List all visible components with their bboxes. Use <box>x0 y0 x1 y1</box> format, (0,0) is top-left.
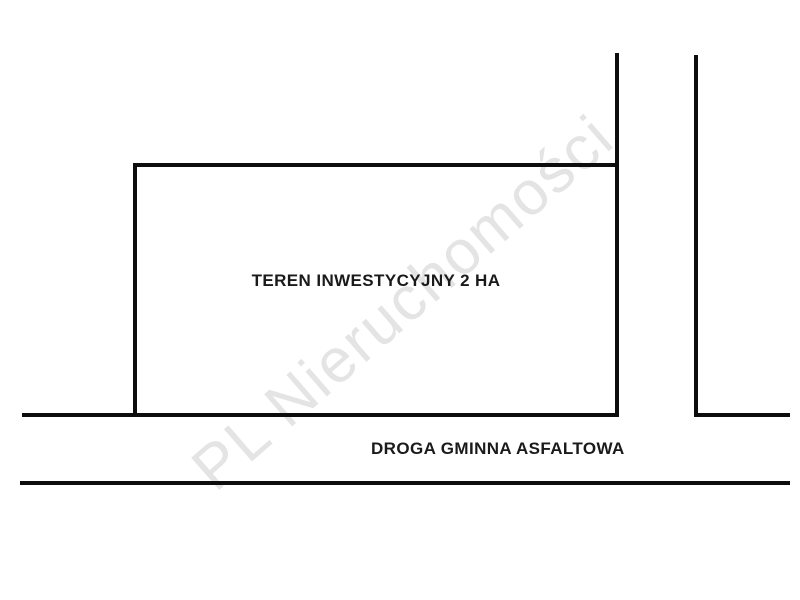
side-road-left-edge-line <box>615 53 619 417</box>
site-plan-canvas: PL Nieruchomości TEREN INWESTYCYJNY 2 HA… <box>0 0 800 600</box>
plot-top-boundary-line <box>133 163 619 167</box>
main-road-upper-edge-left-line <box>22 413 619 417</box>
road-name-label: DROGA GMINNA ASFALTOWA <box>371 439 625 459</box>
plot-area-label: TEREN INWESTYCYJNY 2 HA <box>133 271 619 291</box>
main-road-upper-edge-right-line <box>694 413 790 417</box>
side-road-right-edge-line <box>694 55 698 417</box>
main-road-lower-edge-line <box>20 481 790 485</box>
